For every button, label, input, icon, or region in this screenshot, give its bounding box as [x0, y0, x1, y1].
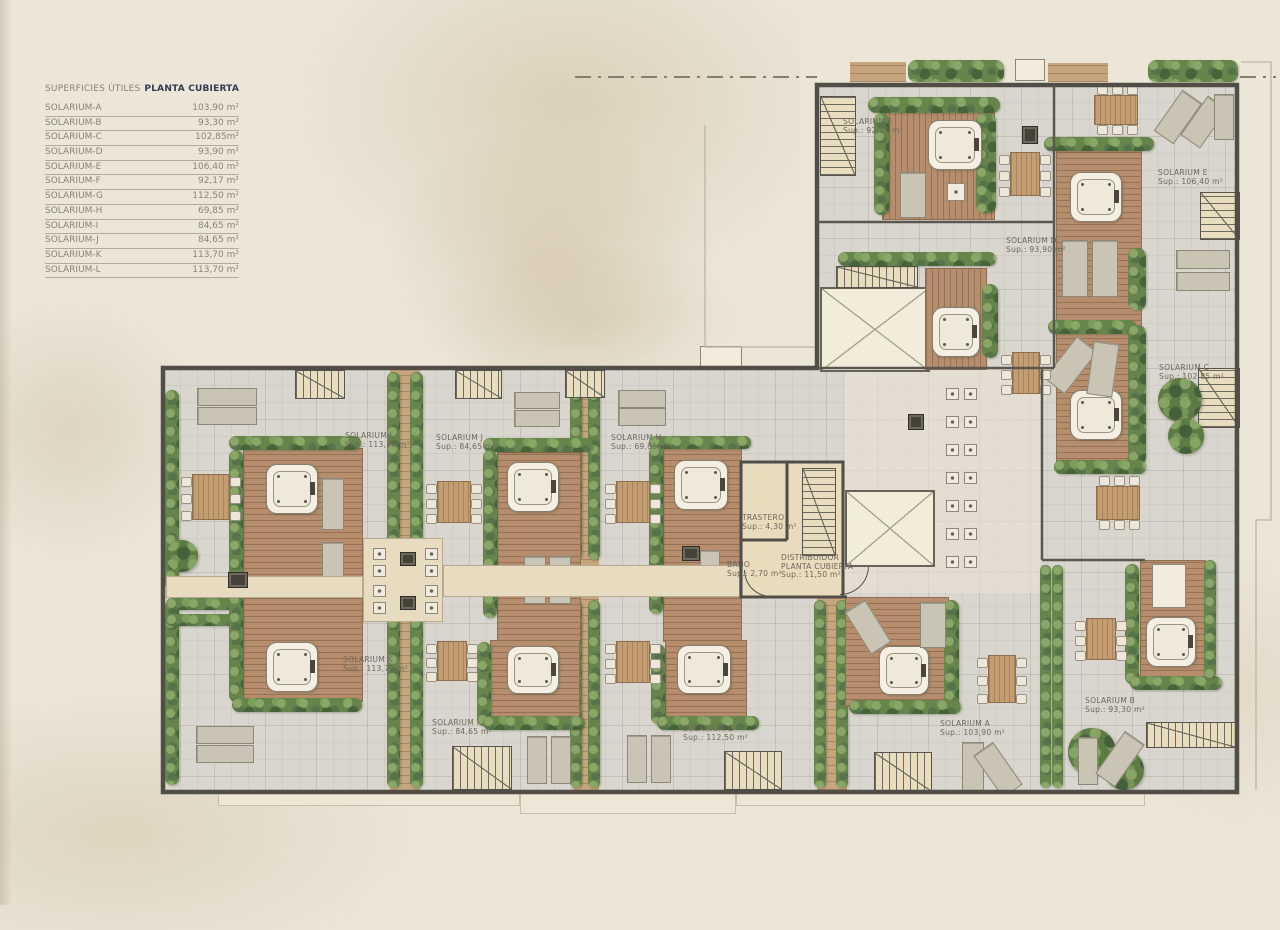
dining-table: [616, 481, 650, 523]
hedge-planter: [1125, 564, 1139, 684]
tub-jet: [304, 653, 307, 656]
chair: [650, 499, 661, 509]
roof-element: [700, 346, 742, 369]
dining-table: [192, 474, 230, 520]
plan-label-solarium-b: SOLARIUM BSup.: 93,30 m²: [1085, 697, 1145, 714]
hedge-planter: [651, 644, 665, 724]
hot-tub: [928, 120, 982, 170]
tub-jet: [545, 657, 548, 660]
chair: [1040, 355, 1051, 365]
chair: [1114, 476, 1125, 486]
dining-table: [437, 641, 467, 681]
chair: [1116, 636, 1127, 646]
tub-jet: [717, 656, 720, 659]
chair: [605, 659, 616, 669]
walkway-corridor: [443, 565, 740, 597]
chair: [1129, 520, 1140, 530]
chair: [1099, 476, 1110, 486]
tub-control-panel: [974, 138, 979, 151]
plan-label-solarium-d: SOLARIUM DSup.: 93,90 m²: [1006, 237, 1066, 254]
chair: [1016, 676, 1027, 686]
tub-jet: [1108, 426, 1111, 429]
sun-lounger: [527, 736, 547, 784]
chair: [605, 514, 616, 524]
sun-lounger: [1176, 272, 1230, 291]
stairs: [295, 370, 345, 399]
tub-jet: [943, 318, 946, 321]
roof-vent: [400, 552, 416, 566]
chair: [1040, 385, 1051, 395]
chair: [426, 499, 437, 509]
small-fixture: [947, 183, 965, 201]
chair: [1097, 125, 1108, 135]
chair: [181, 511, 192, 521]
stairs: [1146, 722, 1236, 748]
chair: [1129, 476, 1140, 486]
hedge-planter: [868, 97, 1000, 113]
tub-jet: [968, 156, 971, 159]
plaza-seat: [373, 565, 386, 577]
plan-label-line: Sup.: 93,90 m²: [1006, 246, 1066, 255]
chair: [426, 644, 437, 654]
plan-label-solarium-e: SOLARIUM ESup.: 106,40 m²: [1158, 169, 1223, 186]
plan-label-solarium-a: SOLARIUM ASup.: 103,90 m²: [940, 720, 1005, 737]
tub-jet: [277, 653, 280, 656]
chair: [650, 674, 661, 684]
stairs: [874, 752, 932, 792]
hot-tub: [266, 464, 318, 514]
plan-label-line: Sup.: 113,70 m²: [345, 441, 410, 450]
sun-lounger: [197, 407, 257, 425]
chair: [181, 494, 192, 504]
chair: [467, 658, 478, 668]
chair: [230, 477, 241, 487]
hedge-planter: [982, 284, 998, 358]
dining-table: [616, 641, 650, 683]
tub-jet: [1182, 628, 1185, 631]
chair: [426, 672, 437, 682]
hot-tub: [677, 645, 731, 694]
tub-jet: [939, 131, 942, 134]
tub-control-panel: [1188, 635, 1193, 648]
plaza-seat: [373, 585, 386, 597]
sun-lounger: [514, 392, 560, 409]
hedge-planter: [1128, 248, 1146, 310]
hot-tub-basin: [514, 653, 552, 687]
hedge-planter: [908, 60, 1004, 82]
plaza-fixture: [946, 500, 959, 512]
tub-control-panel: [921, 664, 926, 677]
plaza-fixture: [946, 528, 959, 540]
tub-control-panel: [310, 482, 315, 495]
tub-jet: [1108, 401, 1111, 404]
dining-table: [988, 655, 1016, 703]
tub-jet: [277, 500, 280, 503]
chair: [1040, 155, 1051, 165]
sun-lounger: [651, 735, 671, 783]
chair: [650, 484, 661, 494]
tub-jet: [1081, 426, 1084, 429]
chair: [977, 676, 988, 686]
tub-jet: [939, 156, 942, 159]
chair: [1097, 85, 1108, 95]
plan-label-solarium-g: SOLARIUM GSup.: 112,50 m²: [683, 725, 748, 742]
roof-element: [1152, 564, 1186, 608]
hedge-planter: [849, 700, 961, 714]
chair: [1016, 658, 1027, 668]
tub-jet: [968, 131, 971, 134]
tub-jet: [915, 681, 918, 684]
tub-control-panel: [972, 325, 977, 338]
hedge-planter: [483, 438, 593, 452]
stairs: [836, 266, 918, 288]
plan-label-trastero: TRASTEROSup.: 4,30 m²: [742, 514, 797, 531]
plan-label-line: Sup.: 93,30 m²: [1085, 706, 1145, 715]
hedge-planter: [410, 600, 423, 788]
sun-lounger: [1092, 240, 1118, 297]
plaza-fixture: [964, 556, 977, 568]
roof-vent: [228, 572, 248, 588]
wood-walkway: [850, 62, 906, 82]
tub-jet: [1182, 653, 1185, 656]
hedge-planter: [232, 698, 362, 712]
tub-jet: [1081, 183, 1084, 186]
tub-jet: [304, 475, 307, 478]
tree: [1158, 378, 1202, 422]
plan-label-line: Sup.: 103,90 m²: [940, 729, 1005, 738]
tub-jet: [277, 475, 280, 478]
plan-label-bano: BAÑOSup.: 2,70 m²: [727, 561, 782, 578]
tub-jet: [518, 680, 521, 683]
plan-label-solarium-k: SOLARIUM KSup.: 113,70 m²: [343, 656, 408, 673]
tub-jet: [915, 657, 918, 660]
plaza-fixture: [964, 528, 977, 540]
chair: [1016, 694, 1027, 704]
plan-label-distribuidor: DISTRIBUIDORPLANTA CUBIERTASup.: 11,50 m…: [781, 554, 853, 580]
skylight: [820, 287, 930, 372]
plaza-fixture: [964, 416, 977, 428]
hedge-planter: [387, 600, 400, 788]
chair: [1001, 370, 1012, 380]
chair: [181, 477, 192, 487]
plan-label-line: Sup.: 112,50 m²: [683, 734, 748, 743]
plan-label-line: Sup.: 106,40 m²: [1158, 178, 1223, 187]
plaza-fixture: [946, 472, 959, 484]
plan-label-solarium-j: SOLARIUM JSup.: 84,65 m²: [436, 434, 496, 451]
tub-control-panel: [310, 660, 315, 673]
tub-jet: [304, 678, 307, 681]
plaza-fixture: [946, 444, 959, 456]
tub-jet: [1108, 183, 1111, 186]
tub-control-panel: [720, 478, 725, 491]
hedge-planter: [1054, 460, 1146, 474]
tub-jet: [518, 657, 521, 660]
hot-tub-basin: [935, 127, 975, 163]
hedge-planter: [814, 600, 826, 788]
hedge-planter: [1052, 565, 1063, 788]
plaza-seat: [425, 585, 438, 597]
hedge-planter: [387, 372, 400, 560]
roof-vent: [1022, 126, 1038, 144]
plaza-seat: [425, 565, 438, 577]
plan-label-line: Sup.: 92,17 m²: [843, 127, 903, 136]
roof-element: [1015, 59, 1045, 81]
plaza-fixture: [946, 556, 959, 568]
sun-lounger: [197, 388, 257, 406]
plaza-seat: [425, 602, 438, 614]
tub-jet: [688, 680, 691, 683]
chair: [605, 484, 616, 494]
hedge-planter: [588, 372, 600, 560]
tub-jet: [545, 473, 548, 476]
hedge-planter: [410, 372, 423, 560]
stairs: [1200, 192, 1240, 240]
hot-tub-basin: [1077, 179, 1115, 215]
hedge-planter: [1048, 320, 1136, 334]
plan-label-line: Sup.: 102,85 m²: [1159, 373, 1224, 382]
sun-lounger: [920, 602, 946, 648]
chair: [1114, 520, 1125, 530]
tub-jet: [966, 318, 969, 321]
skylight: [845, 490, 935, 567]
tub-jet: [890, 657, 893, 660]
plaza-fixture: [946, 416, 959, 428]
chair: [1112, 125, 1123, 135]
tub-jet: [1108, 208, 1111, 211]
tub-jet: [714, 471, 717, 474]
chair: [650, 514, 661, 524]
chair: [426, 484, 437, 494]
sun-lounger: [196, 726, 254, 744]
tub-jet: [688, 656, 691, 659]
chair: [471, 484, 482, 494]
blueprint-page: SUPERFICIES ÚTILES PLANTA CUBIERTA SOLAR…: [0, 0, 1280, 905]
sun-lounger: [900, 172, 926, 218]
tub-jet: [717, 680, 720, 683]
chair: [1001, 385, 1012, 395]
chair: [467, 644, 478, 654]
hot-tub-basin: [273, 471, 311, 507]
chair: [471, 499, 482, 509]
hot-tub: [1070, 172, 1122, 222]
plaza-fixture: [964, 444, 977, 456]
hedge-planter: [483, 716, 585, 730]
tub-jet: [304, 500, 307, 503]
dining-table: [1096, 486, 1140, 520]
plan-label-solarium-f: SOLARIUM FSup.: 92,17 m²: [843, 118, 903, 135]
chair: [1112, 85, 1123, 95]
chair: [426, 514, 437, 524]
hedge-planter: [1128, 325, 1146, 465]
plan-label-line: Sup.: 11,50 m²: [781, 571, 853, 580]
chair: [1116, 621, 1127, 631]
plan-label-line: Sup.: 4,30 m²: [742, 523, 797, 532]
plaza-seat: [373, 602, 386, 614]
hot-tub: [266, 642, 318, 692]
chair: [230, 494, 241, 504]
hot-tub-basin: [939, 314, 973, 350]
parapet-edge: [218, 792, 520, 806]
chair: [650, 644, 661, 654]
sun-lounger: [551, 736, 571, 784]
hedge-planter: [1040, 565, 1051, 788]
tub-jet: [1081, 401, 1084, 404]
hot-tub: [507, 462, 559, 512]
hot-tub-basin: [1077, 397, 1115, 433]
tub-control-panel: [551, 663, 556, 676]
chair: [977, 694, 988, 704]
tub-jet: [1157, 628, 1160, 631]
sun-lounger: [627, 735, 647, 783]
plaza-fixture: [946, 388, 959, 400]
dining-table: [1012, 352, 1040, 394]
plan-label-line: Sup.: 2,70 m²: [727, 570, 782, 579]
tub-jet: [943, 343, 946, 346]
plan-label-solarium-c: SOLARIUM CSup.: 102,85 m²: [1159, 364, 1224, 381]
hedge-planter: [1204, 560, 1216, 678]
hedge-planter: [229, 436, 361, 450]
plan-label-line: Sup.: 69,85 m²: [611, 443, 671, 452]
chair: [605, 674, 616, 684]
tree: [1168, 418, 1204, 454]
hot-tub: [879, 646, 929, 695]
tub-jet: [545, 498, 548, 501]
tub-control-panel: [1114, 408, 1119, 421]
tub-jet: [966, 343, 969, 346]
stairs: [802, 468, 836, 556]
hot-tub-basin: [514, 469, 552, 505]
sun-lounger: [618, 390, 666, 408]
chair: [1075, 651, 1086, 661]
hot-tub-basin: [273, 649, 311, 685]
roof-vent: [908, 414, 924, 430]
chair: [1001, 355, 1012, 365]
tub-jet: [545, 680, 548, 683]
hot-tub: [1070, 390, 1122, 440]
sun-lounger: [618, 408, 666, 426]
chair: [999, 155, 1010, 165]
hot-tub: [932, 307, 980, 357]
chair: [1040, 187, 1051, 197]
tub-jet: [714, 496, 717, 499]
stairs: [820, 96, 856, 176]
hot-tub: [674, 460, 728, 510]
chair: [426, 658, 437, 668]
tub-control-panel: [723, 663, 728, 676]
tub-control-panel: [1114, 190, 1119, 203]
hot-tub: [1146, 617, 1196, 667]
chair: [1075, 636, 1086, 646]
hedge-planter: [1044, 137, 1154, 151]
hot-tub-basin: [684, 652, 724, 687]
parapet-edge: [520, 792, 736, 814]
plaza-seat: [373, 548, 386, 560]
tub-jet: [890, 681, 893, 684]
dining-table: [1086, 618, 1116, 660]
tub-jet: [685, 471, 688, 474]
chair: [467, 672, 478, 682]
hot-tub-basin: [681, 467, 721, 503]
stairs: [565, 370, 605, 398]
plaza-fixture: [964, 388, 977, 400]
hedge-planter: [588, 600, 600, 788]
hedge-planter: [477, 642, 491, 726]
plan-label-solarium-l: SOLARIUM LSup.: 113,70 m²: [345, 432, 410, 449]
dining-table: [1094, 95, 1138, 125]
tub-jet: [1157, 653, 1160, 656]
plaza-fixture: [964, 472, 977, 484]
tub-jet: [1081, 208, 1084, 211]
parapet-edge: [736, 792, 1145, 806]
roof-vent: [682, 546, 700, 561]
chair: [1040, 370, 1051, 380]
chair: [999, 187, 1010, 197]
sun-lounger: [196, 745, 254, 763]
chair: [1099, 520, 1110, 530]
hedge-planter: [165, 600, 179, 785]
chair: [650, 659, 661, 669]
chair: [1040, 171, 1051, 181]
hedge-planter: [1148, 60, 1238, 82]
stairs: [724, 751, 782, 790]
plan-label-solarium-h: SOLARIUM HSup.: 69,85 m²: [611, 434, 671, 451]
walkway-corridor: [166, 576, 363, 598]
tree: [166, 540, 198, 572]
chair: [605, 644, 616, 654]
tub-jet: [685, 496, 688, 499]
chair: [1075, 621, 1086, 631]
sun-lounger: [1078, 737, 1098, 785]
chair: [605, 499, 616, 509]
sun-lounger: [1214, 94, 1234, 140]
roof-vent: [400, 596, 416, 610]
wood-walkway: [1048, 63, 1108, 82]
hedge-planter: [1130, 676, 1222, 690]
chair: [1116, 651, 1127, 661]
hot-tub: [507, 646, 559, 694]
chair: [1127, 85, 1138, 95]
tub-jet: [277, 678, 280, 681]
chair: [471, 514, 482, 524]
dining-table: [1010, 152, 1040, 196]
chair: [977, 658, 988, 668]
hot-tub-basin: [1153, 624, 1189, 660]
plaza-fixture: [964, 500, 977, 512]
floor-plan: SOLARIUM FSup.: 92,17 m²SOLARIUM ESup.: …: [0, 0, 1280, 905]
sun-lounger: [322, 478, 344, 530]
dining-table: [437, 481, 471, 523]
plan-label-line: Sup.: 113,70 m²: [343, 665, 408, 674]
tub-control-panel: [551, 480, 556, 493]
plan-label-solarium-i: SOLARIUM ISup.: 84,65 m²: [432, 719, 492, 736]
chair: [1127, 125, 1138, 135]
tub-jet: [518, 473, 521, 476]
chair: [999, 171, 1010, 181]
plan-label-line: Sup.: 84,65 m²: [436, 443, 496, 452]
hot-tub-basin: [886, 653, 922, 688]
stairs: [452, 746, 512, 790]
hedge-planter: [944, 600, 959, 710]
stairs: [455, 370, 502, 399]
chair: [230, 511, 241, 521]
plan-label-line: Sup.: 84,65 m²: [432, 728, 492, 737]
plaza-seat: [425, 548, 438, 560]
sun-lounger: [1176, 250, 1230, 269]
hedge-planter: [838, 252, 996, 266]
sun-lounger: [514, 410, 560, 427]
tub-jet: [518, 498, 521, 501]
